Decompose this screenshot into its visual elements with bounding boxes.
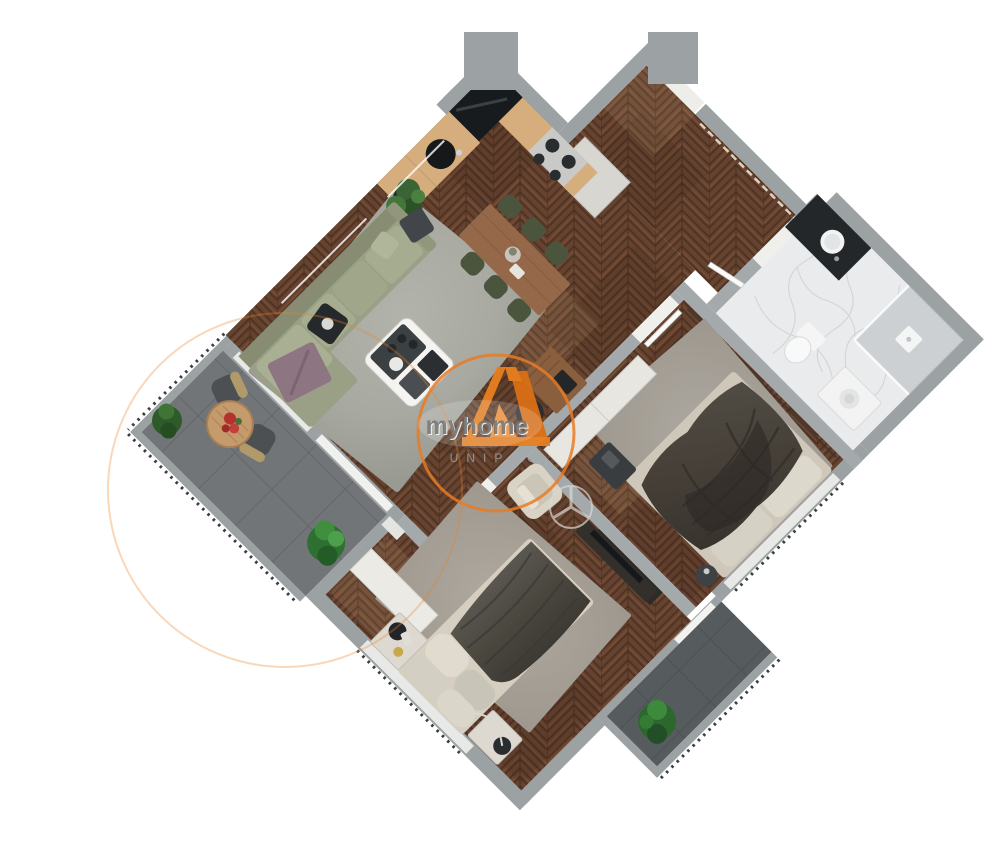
svg-text:UNIPRO: UNIPRO xyxy=(450,451,545,465)
svg-text:myhome: myhome xyxy=(426,412,529,440)
